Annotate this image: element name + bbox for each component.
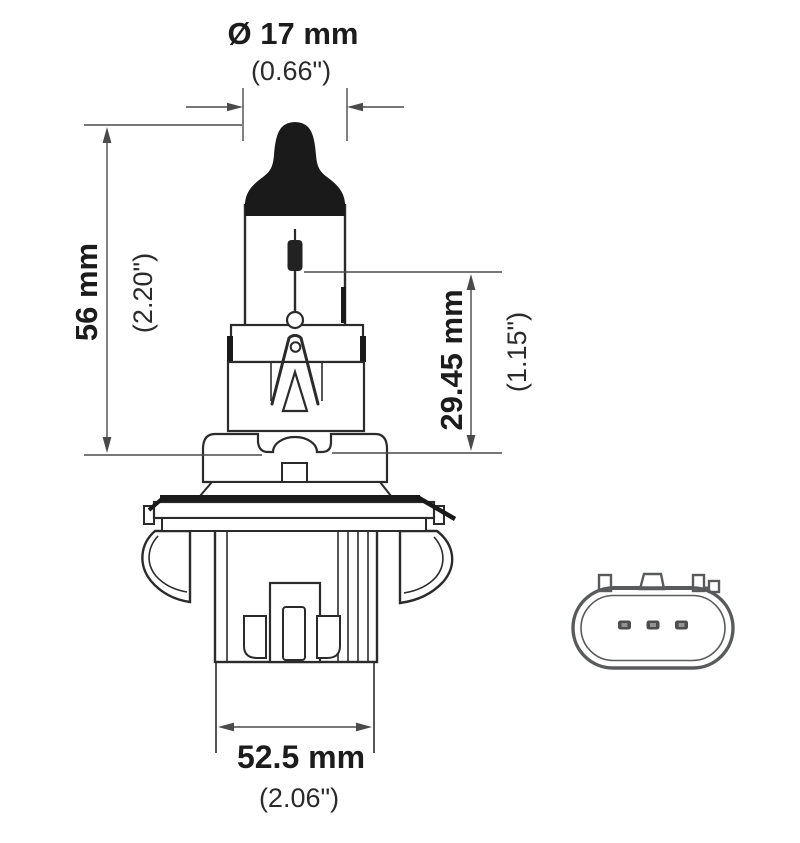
arrowhead-up-icon (467, 274, 476, 290)
filament (288, 240, 303, 271)
support-pivot (291, 342, 301, 352)
dim-width-metric: 52.5 mm (237, 739, 365, 775)
dim-length-metric: 56 mm (69, 243, 104, 341)
black-tip (245, 122, 345, 216)
drawing-canvas: Ø 17 mm (0.66") 56 mm (2.20") 29.45 mm (… (0, 0, 800, 843)
collar-weld-left (227, 336, 233, 362)
dim-lcl-imperial: (1.15") (502, 312, 532, 392)
arrowhead-left-icon (347, 103, 363, 111)
connector-face-view (573, 574, 733, 668)
connector-terminals (618, 621, 688, 630)
arrowhead-down-icon (103, 437, 112, 453)
terminal-3-slot (679, 623, 685, 627)
collar-weld-right (360, 336, 366, 362)
gasket-band (160, 495, 420, 502)
filament-assembly (288, 229, 303, 313)
arrowhead-down-icon (467, 435, 476, 451)
arrowhead-up-icon (103, 127, 112, 143)
terminal-2-slot (650, 623, 656, 627)
seat-flange-upper (154, 502, 434, 518)
dim-base-width: 52.5 mm (2.06") (218, 723, 372, 813)
center-slot (283, 607, 305, 660)
dim-width-imperial: (2.06") (259, 783, 339, 813)
dim-diameter-metric: Ø 17 mm (228, 16, 359, 51)
terminal-1-slot (622, 623, 628, 627)
bulb-side-view (142, 122, 455, 753)
dim-lcl-metric: 29.45 mm (434, 289, 469, 430)
arrowhead-left-icon (218, 723, 234, 732)
side-slot-right (317, 616, 340, 658)
glass-bead (287, 312, 303, 328)
dim-diameter-imperial: (0.66") (251, 56, 331, 86)
side-slot-left (244, 616, 266, 658)
seat-flange-lower (162, 518, 426, 531)
bulb-technical-drawing: Ø 17 mm (0.66") 56 mm (2.20") 29.45 mm (… (0, 0, 800, 843)
arrowhead-right-icon (227, 103, 243, 111)
key-tab (282, 463, 307, 483)
flange-skirt (200, 482, 391, 496)
arrowhead-right-icon (356, 723, 372, 732)
bulb-base (142, 312, 455, 753)
dim-length-imperial: (2.20") (128, 253, 158, 333)
